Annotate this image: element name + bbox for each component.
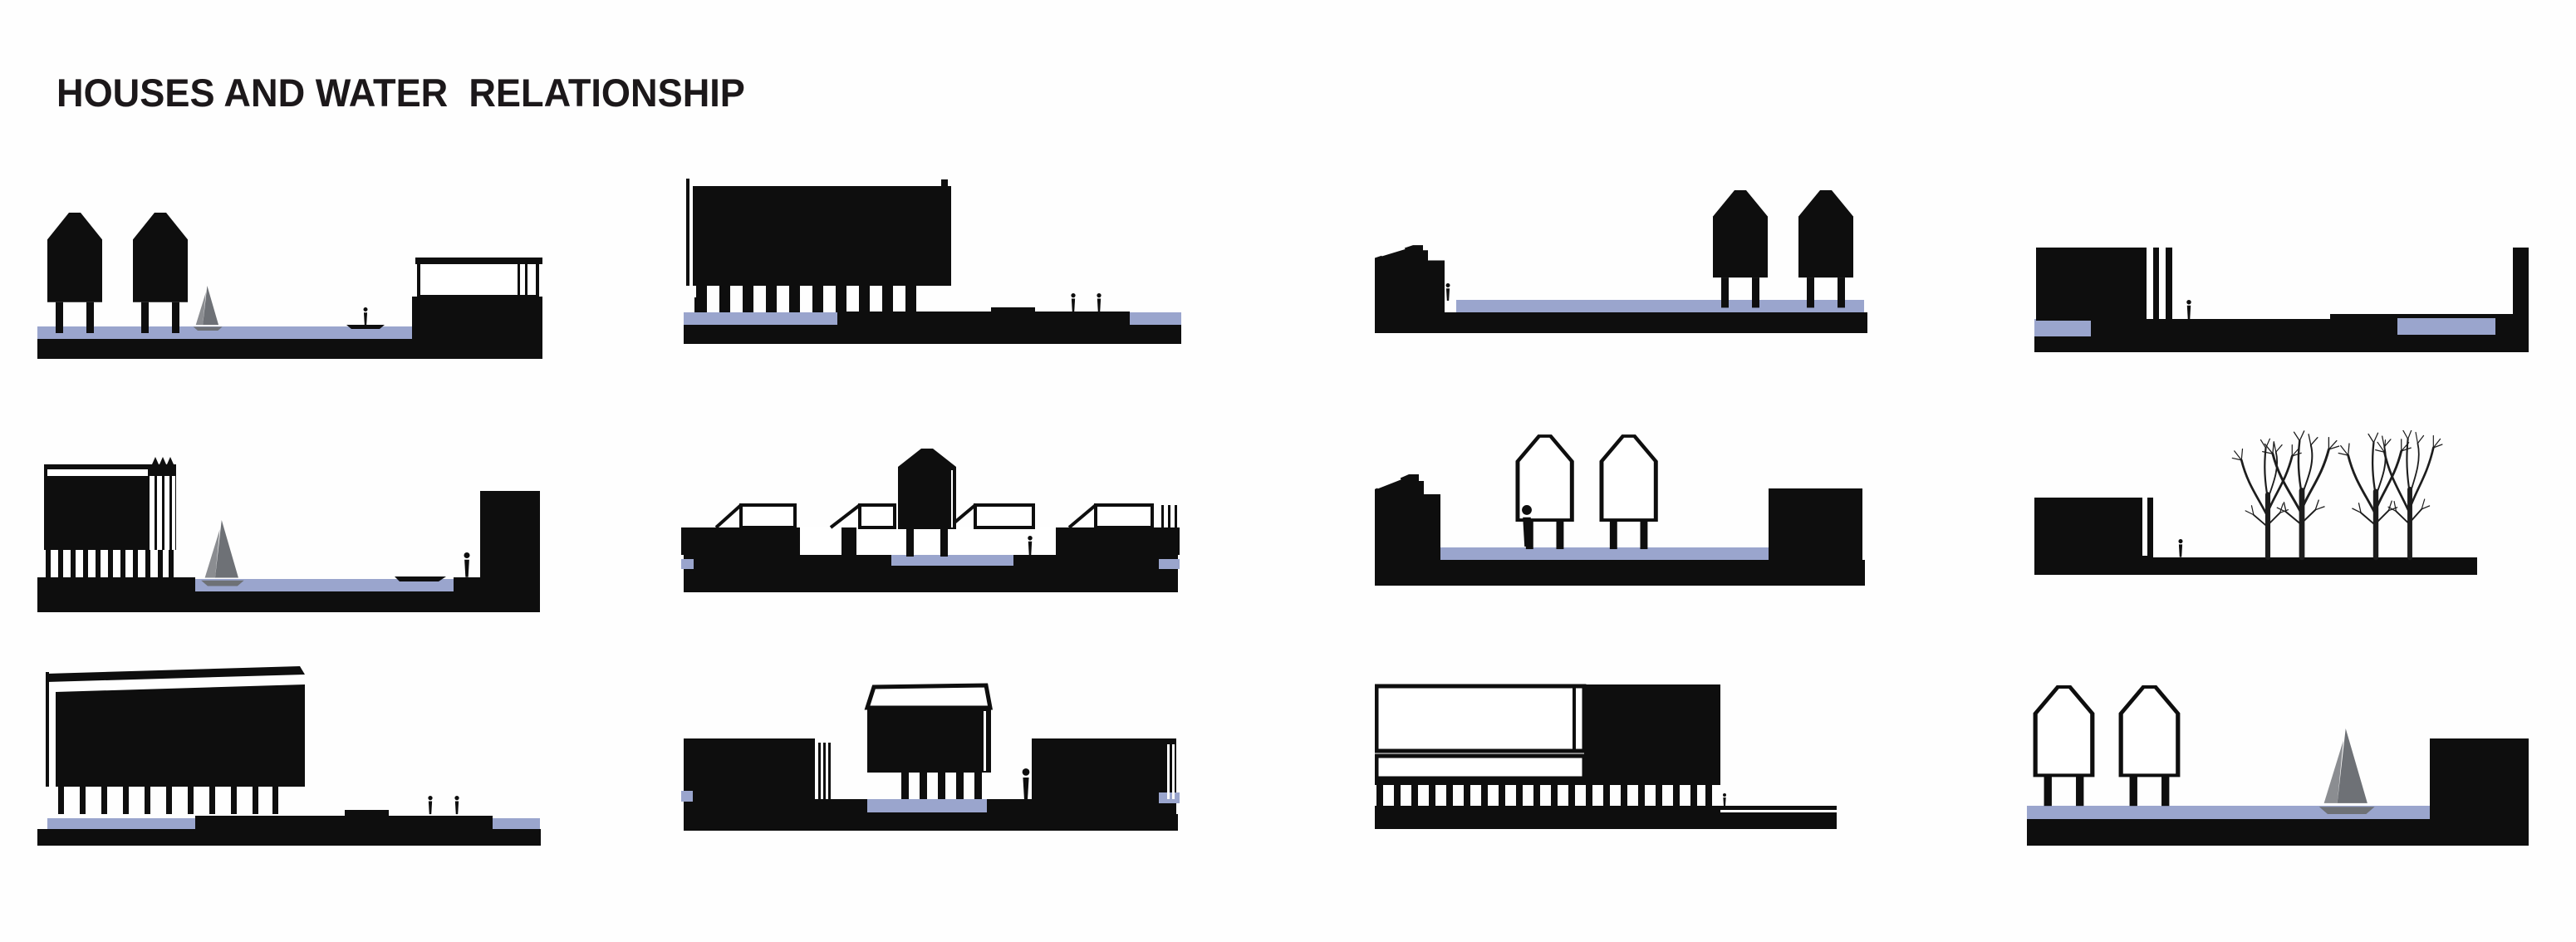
bench — [991, 307, 1035, 312]
person-icon — [2178, 539, 2182, 557]
rowboat-icon — [395, 576, 446, 581]
person-icon — [1446, 283, 1450, 301]
outlined-stilt-house-icon — [2035, 687, 2093, 806]
building-block — [693, 186, 951, 286]
ground — [2034, 557, 2477, 575]
gabled-stilt-house — [867, 685, 991, 799]
building-block — [44, 464, 176, 550]
ground — [684, 324, 1181, 344]
diagram-stilt-house-among-sheds — [681, 430, 1196, 621]
building-block — [2034, 498, 2153, 557]
outlined-stilt-house-icon — [2121, 687, 2178, 806]
solid-block — [2430, 738, 2529, 820]
water-pool — [2397, 318, 2495, 335]
stilts — [901, 773, 982, 799]
roof-stripe — [47, 469, 148, 476]
sailboat-icon — [201, 520, 244, 586]
stilt-house-icon — [1798, 190, 1853, 307]
open-frame-upper — [1376, 686, 1584, 751]
diagram-shed-roof-block-on-piles — [37, 665, 552, 856]
barn-house-icon — [1375, 474, 1440, 586]
bare-tree-icon — [2263, 431, 2339, 557]
water-band — [493, 818, 540, 829]
platform — [1375, 806, 1720, 812]
person-icon — [364, 307, 368, 325]
person-icon — [1071, 293, 1075, 312]
sailboat-icon — [194, 286, 223, 331]
person-icon — [2186, 300, 2191, 319]
land — [37, 577, 195, 612]
diagram-sheet: HOUSES AND WATER RELATIONSHIP — [0, 0, 2576, 942]
diagram-slatted-block-boat-basin — [37, 430, 552, 621]
left-mass — [684, 738, 815, 831]
person-icon — [1097, 293, 1101, 312]
water-band — [1130, 312, 1181, 325]
water-band — [47, 818, 195, 829]
quay — [195, 816, 493, 831]
barn-house-icon — [1375, 245, 1445, 331]
water-pool — [867, 799, 987, 812]
piles — [58, 787, 278, 814]
diagram-barn-facing-stilt-houses — [1375, 166, 1894, 366]
diagram-raised-slab-building — [1375, 665, 1894, 856]
bench — [345, 810, 389, 816]
water-band — [684, 312, 837, 325]
diagram-building-and-bare-trees — [2027, 430, 2546, 621]
stilt-house-icon — [47, 213, 102, 333]
quay-building-base — [412, 297, 542, 359]
slit-opening — [2159, 248, 2166, 319]
piles — [694, 286, 916, 312]
sailboat-icon — [2319, 729, 2375, 814]
stilt-house-icon — [133, 213, 188, 333]
person-icon — [1023, 768, 1030, 799]
open-frame-lower — [1376, 756, 1584, 778]
land — [454, 577, 480, 612]
paddle-board — [346, 325, 385, 329]
stilt-house-icon — [1713, 190, 1768, 307]
end-wall — [2513, 248, 2529, 352]
solid-half — [1584, 684, 1720, 782]
person-icon — [454, 796, 459, 814]
slit-opening — [2147, 248, 2153, 319]
ground — [37, 829, 541, 846]
walk-line — [1720, 806, 1837, 810]
slat-screen — [1161, 505, 1177, 527]
diagram-outlined-houses-sailboat-block — [2027, 665, 2546, 856]
page-title: HOUSES AND WATER RELATIONSHIP — [56, 70, 745, 115]
ground — [1375, 812, 1837, 829]
bare-tree-icon — [2232, 439, 2301, 557]
opening — [856, 527, 1056, 555]
ground — [2027, 819, 2529, 846]
chimney — [941, 179, 948, 187]
quay — [837, 312, 1130, 325]
right-mass — [1032, 738, 1176, 831]
outlined-stilt-house-icon — [1602, 436, 1656, 549]
gable-roof — [867, 685, 990, 708]
piles — [1376, 785, 1712, 806]
water-pool — [2034, 319, 2091, 336]
ground — [1375, 312, 1867, 333]
building-body — [56, 684, 305, 787]
slat-screen — [818, 743, 831, 799]
diagram-stilt-houses-waterfront — [37, 166, 552, 366]
diagram-outlined-stilt-houses-in-water — [1375, 430, 1894, 621]
water-pocket — [1159, 559, 1180, 569]
slit-opening — [2142, 498, 2147, 556]
pole — [686, 179, 689, 286]
roof-slab — [47, 666, 305, 682]
opening — [800, 527, 841, 555]
water-pocket — [681, 559, 694, 569]
pole — [46, 672, 49, 787]
person-icon — [1723, 793, 1726, 807]
water-sheet — [1431, 547, 1774, 560]
piles — [46, 550, 174, 577]
person-icon — [464, 552, 469, 577]
slat-tips — [152, 457, 174, 464]
solid-block — [1769, 488, 1862, 586]
solid-block — [480, 491, 540, 612]
person-icon — [428, 796, 432, 814]
diagram-building-with-sunken-pools — [2027, 166, 2546, 366]
water-pocket — [681, 791, 693, 802]
diagram-block-on-piles-over-water — [681, 166, 1196, 366]
water-band — [1456, 300, 1864, 312]
house-body — [867, 708, 991, 773]
diagram-courtyard-stilt-house — [681, 665, 1196, 856]
